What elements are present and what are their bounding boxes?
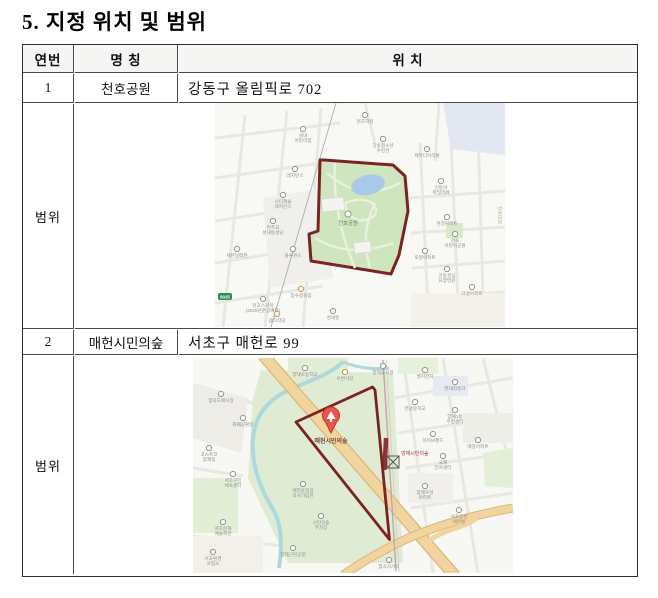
row1-range-label: 범위 — [23, 104, 74, 329]
svg-text:우면식당: 우면식당 — [337, 375, 355, 382]
header-name: 명 칭 — [75, 45, 178, 73]
row2-location: 서초구 매헌로 99 — [179, 330, 637, 355]
svg-text:전자센터: 전자센터 — [435, 464, 452, 471]
map1-park-poi-dot — [345, 211, 351, 217]
svg-text:제이디어리빌: 제이디어리빌 — [414, 152, 439, 159]
svg-text:수련관: 수련관 — [377, 147, 390, 154]
svg-text:하이브랜드: 하이브랜드 — [422, 437, 443, 444]
svg-text:레지던스: 레지던스 — [287, 172, 304, 179]
map2-green-right — [483, 448, 513, 488]
map2-green-top-right — [398, 358, 438, 374]
svg-text:파밀리에: 파밀리에 — [433, 189, 450, 196]
svg-text:강동성심: 강동성심 — [439, 272, 456, 278]
svg-text:현대자동차: 현대자동차 — [444, 385, 466, 392]
svg-text:양재초등학교: 양재초등학교 — [292, 371, 317, 378]
svg-text:양재꽃시장: 양재꽃시장 — [372, 369, 394, 376]
svg-text:아파트: 아파트 — [419, 494, 432, 501]
svg-text:엘지전자: 엘지전자 — [417, 373, 435, 380]
map-maeheon-forest: 양재시민의숲 매헌시민의숲 양곡도매시장화훼공판장코스트코양재점서초구민체육센터… — [193, 358, 513, 573]
row1-location: 강동구 올림픽로 702 — [179, 74, 637, 103]
map2-station-label: 양재시민의숲 — [401, 450, 429, 457]
map2-block-right1 — [463, 413, 513, 443]
svg-text:삼미식당: 삼미식당 — [269, 317, 287, 324]
svg-text:주민센터: 주민센터 — [447, 418, 464, 425]
row2-no: 2 — [23, 330, 74, 355]
svg-text:세븐일레븐: 세븐일레븐 — [226, 252, 247, 259]
svg-text:염곡사거리: 염곡사거리 — [378, 563, 399, 570]
svg-text:의사기념관: 의사기념관 — [292, 492, 314, 499]
svg-text:로얄아파트: 로얄아파트 — [414, 254, 435, 261]
svg-text:매봉아파트: 매봉아파트 — [467, 443, 488, 450]
svg-text:예술회관: 예술회관 — [215, 530, 233, 537]
svg-text:장수정육점: 장수정육점 — [290, 292, 311, 299]
svg-text:쉐르빌: 쉐르빌 — [453, 518, 466, 525]
svg-text:천일아파트: 천일아파트 — [436, 220, 457, 227]
document-page: 5. 지정 위치 및 범위 연번 명 칭 위 치 1 천호공원 강동구 올림픽로… — [0, 0, 658, 598]
maeheon-map-canvas: 양재시민의숲 매헌시민의숲 양곡도매시장화훼공판장코스트코양재점서초구민체육센터… — [193, 358, 513, 573]
map-cheonho-park: 천호공원 천호대로 성내어린이집천호학원강동청소년수련관레지던스시티캐슬레지던스… — [215, 103, 505, 327]
svg-text:체육센터: 체육센터 — [225, 482, 242, 489]
row2-range-label: 범위 — [23, 356, 74, 574]
svg-text:양재근린공원: 양재근린공원 — [280, 551, 305, 558]
svg-text:다성아파트: 다성아파트 — [461, 290, 482, 297]
svg-text:요양병원: 요양병원 — [439, 277, 456, 283]
svg-text:6025: 6025 — [220, 295, 230, 300]
svg-text:양곡도매시장: 양곡도매시장 — [208, 397, 234, 404]
svg-text:언남중학교: 언남중학교 — [404, 405, 425, 412]
map1-block-bottom — [411, 293, 505, 327]
header-location: 위 치 — [179, 45, 637, 73]
svg-text:사업소: 사업소 — [207, 560, 220, 567]
cheonho-map-canvas: 천호공원 천호대로 성내어린이집천호학원강동청소년수련관레지던스시티캐슬레지던스… — [215, 103, 505, 327]
svg-text:강동청소년: 강동청소년 — [372, 142, 393, 148]
svg-text:어린이집: 어린이집 — [295, 137, 312, 144]
svg-text:블루윈스: 블루윈스 — [285, 252, 302, 259]
map2-park-name-label: 매헌시민의숲 — [314, 437, 348, 445]
map1-park-name-label: 천호공원 — [338, 219, 358, 227]
svg-text:화훼공판장: 화훼공판장 — [232, 421, 254, 428]
row2-name: 매헌시민의숲 — [75, 330, 178, 355]
svg-text:성내동성당: 성내동성당 — [262, 229, 284, 236]
svg-text:양재점: 양재점 — [203, 456, 216, 463]
svg-text:어린이공원: 어린이공원 — [444, 242, 465, 249]
svg-text:레지던스: 레지던스 — [275, 203, 292, 210]
header-no: 연번 — [23, 45, 74, 73]
map1-road-label: 천호대로 — [496, 206, 503, 225]
svg-text:천호학원: 천호학원 — [357, 118, 374, 125]
svg-text:천호: 천호 — [451, 237, 459, 243]
svg-text:성내동: 성내동 — [327, 314, 340, 321]
svg-text:주차장: 주차장 — [315, 524, 328, 531]
row1-no: 1 — [23, 74, 74, 103]
page-title: 5. 지정 위치 및 범위 — [22, 6, 207, 36]
map1-large-building-block — [443, 103, 505, 155]
map1-designation-boundary — [309, 160, 408, 274]
map2-block-bottomleft — [193, 536, 263, 573]
row1-name: 천호공원 — [75, 74, 178, 103]
